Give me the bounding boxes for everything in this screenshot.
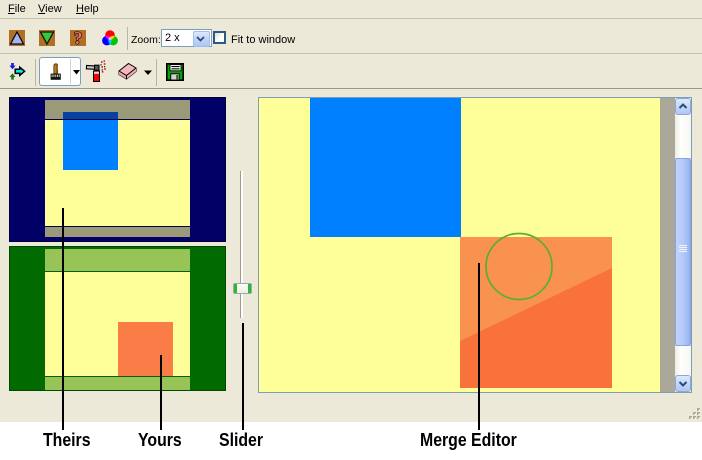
svg-text:?: ? <box>74 30 83 46</box>
